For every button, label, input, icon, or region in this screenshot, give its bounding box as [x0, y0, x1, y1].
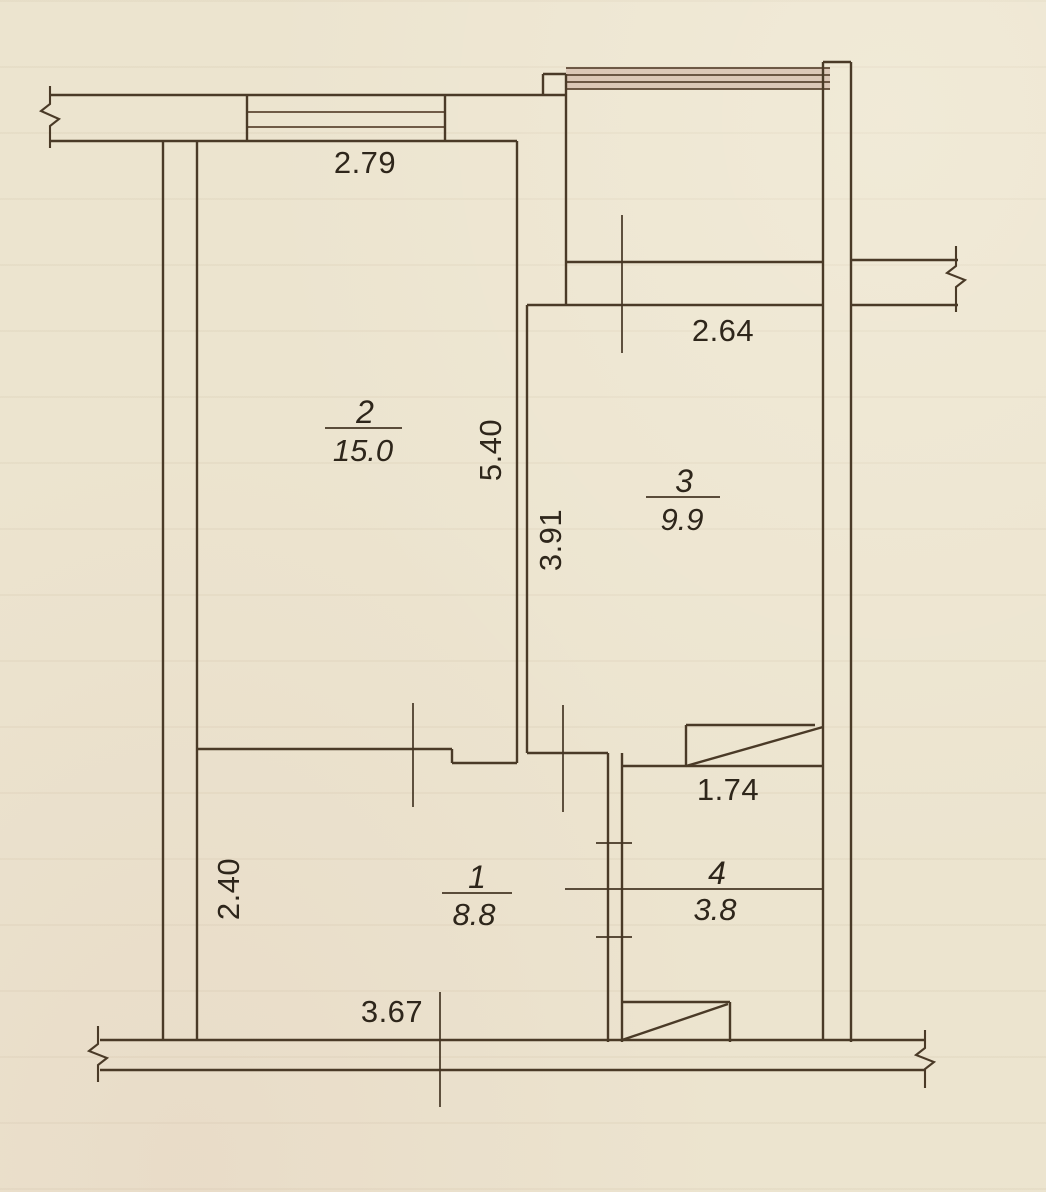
floor-plan-drawing: 2.792.645.403.911.742.403.67215.039.918.…	[0, 0, 1046, 1192]
room-number-label: 1	[468, 859, 486, 895]
label-layer: 2.792.645.403.911.742.403.67215.039.918.…	[211, 145, 759, 1029]
wall-line	[622, 1004, 728, 1040]
dimension-label: 2.64	[692, 313, 754, 348]
wall-break-mark	[916, 1030, 934, 1088]
dimension-label: 1.74	[697, 772, 759, 807]
balcony-window-tint-layer	[566, 68, 830, 89]
dimension-label: 3.67	[361, 994, 423, 1029]
dimension-label: 5.40	[473, 419, 508, 481]
room-area-label: 8.8	[452, 897, 496, 932]
room-number-label: 2	[355, 394, 374, 430]
dimension-tick-layer	[325, 215, 823, 1107]
wall-lines-layer	[50, 62, 958, 1070]
dimension-label: 2.40	[211, 858, 246, 920]
scanned-floor-plan-page: 2.792.645.403.911.742.403.67215.039.918.…	[0, 0, 1046, 1192]
break-mark-layer	[41, 86, 965, 1088]
dimension-label: 3.91	[533, 509, 568, 571]
wall-line	[686, 727, 823, 766]
balcony-window-tint	[566, 68, 830, 89]
room-area-label: 15.0	[333, 433, 393, 468]
room-number-label: 3	[675, 463, 693, 499]
room-number-label: 4	[708, 855, 726, 891]
dimension-label: 2.79	[334, 145, 396, 180]
room-area-label: 3.8	[693, 892, 737, 927]
wall-break-mark	[947, 246, 965, 312]
room-area-label: 9.9	[660, 502, 703, 537]
wall-break-mark	[89, 1026, 107, 1082]
